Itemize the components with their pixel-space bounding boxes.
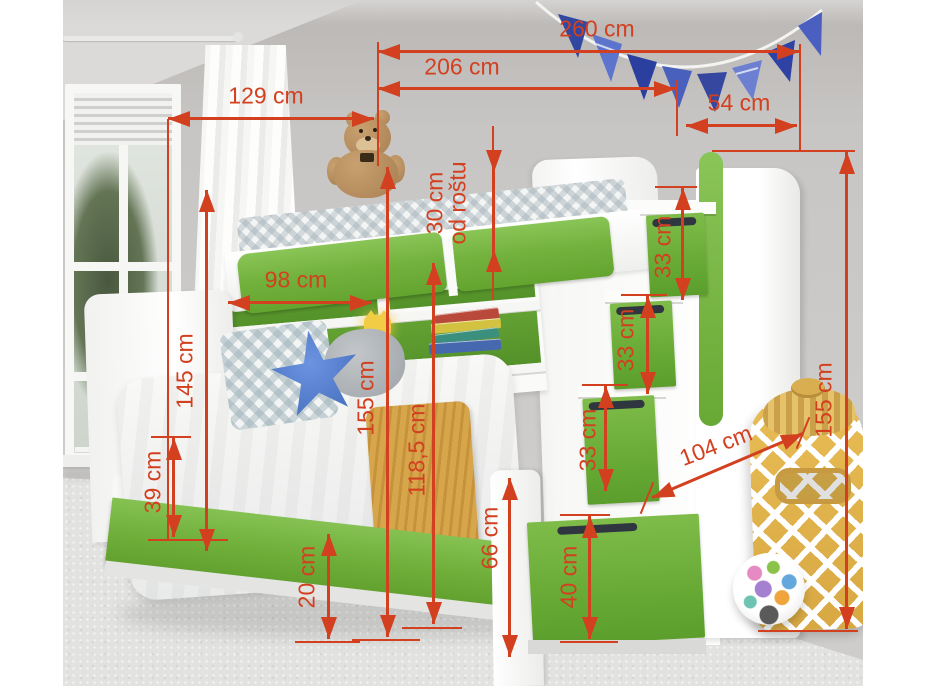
- dim-arrow-bed-length: [378, 87, 676, 90]
- dim-arrow-headboard-height: [205, 190, 208, 551]
- dim-tick: [295, 641, 360, 643]
- dim-tick: [712, 150, 855, 152]
- dim-label-total-height: 155 cm: [812, 362, 835, 437]
- dim-value: 30 cm: [424, 161, 447, 244]
- flag: [627, 54, 657, 100]
- dim-tick: [151, 436, 191, 438]
- dim-tick: [560, 514, 610, 516]
- dim-label-stairs-width: 54 cm: [708, 91, 771, 114]
- dim-tick: [621, 294, 667, 296]
- dim-arrow-rail-height: [492, 150, 495, 272]
- dim-arrow-total-height: [845, 152, 848, 629]
- teddy-bear: [365, 136, 371, 141]
- dim-tick: [352, 639, 420, 641]
- dim-note: od roštu: [447, 161, 470, 244]
- dim-label-bed-length: 206 cm: [424, 55, 499, 78]
- dim-arrow-stair-step-3: [604, 386, 607, 491]
- dim-extension-line: [377, 42, 379, 166]
- dim-tick: [655, 186, 697, 188]
- dim-label-headboard-height: 145 cm: [173, 333, 196, 408]
- dim-tick: [758, 630, 858, 632]
- dim-arrow-trundle-height: [172, 438, 175, 537]
- dim-arrow-footboard-height: [508, 478, 511, 657]
- dim-label-footboard-height: 66 cm: [478, 507, 501, 570]
- dim-extension-line: [167, 119, 169, 539]
- product-dimension-diagram: 260 cm 206 cm 129 cm 54 cm 98 cm 30 cm o…: [0, 0, 928, 686]
- dim-arrow-lower-height: [432, 263, 435, 624]
- room-photo: 260 cm 206 cm 129 cm 54 cm 98 cm 30 cm o…: [63, 0, 863, 686]
- dim-label-stair-drawer-height: 40 cm: [557, 546, 580, 609]
- dim-extension-line: [492, 126, 494, 152]
- dim-label-floor-clearance: 20 cm: [295, 546, 318, 609]
- stair-bottom-drawer: [527, 514, 705, 647]
- window-mullion: [74, 262, 172, 271]
- dim-label-shelf-width: 98 cm: [265, 268, 328, 291]
- dim-extension-line: [799, 44, 801, 150]
- toy-bag-handle: [775, 468, 851, 504]
- beach-ball: [733, 553, 805, 625]
- dim-arrow-shelf-width: [228, 301, 372, 304]
- dim-arrow-stairs-width: [686, 124, 797, 127]
- window-blinds: [74, 93, 172, 145]
- dim-tick: [148, 539, 228, 541]
- dim-arrow-upper-bed-width: [168, 117, 374, 120]
- teddy-bear-bow: [360, 153, 374, 162]
- teddy-bear: [359, 129, 363, 133]
- dim-label-upper-bed-width: 129 cm: [228, 84, 303, 107]
- curtain-rod-finial: [233, 32, 243, 42]
- dim-extension-line: [492, 270, 494, 300]
- dim-arrow-stair-drawer-height: [588, 516, 591, 639]
- dim-label-rail-height: 30 cm od roštu: [424, 161, 471, 244]
- dim-arrow-stair-step-2: [646, 296, 649, 394]
- dim-label-lower-height: 118,5 cm: [405, 404, 428, 497]
- dim-tick: [560, 641, 618, 643]
- dim-label-trundle-height: 39 cm: [141, 451, 164, 514]
- dim-label-stair-step-3: 33 cm: [576, 409, 599, 472]
- dim-arrow-stair-step-1: [681, 188, 684, 300]
- dim-label-total-width: 260 cm: [559, 17, 634, 40]
- dim-label-mid-height: 155 cm: [354, 360, 377, 435]
- dim-extension-line: [676, 80, 678, 136]
- dim-label-stair-step-2: 33 cm: [614, 309, 637, 372]
- dim-arrow-mid-height: [386, 167, 389, 637]
- dim-tick: [402, 627, 462, 629]
- dim-arrow-floor-clearance: [327, 534, 330, 639]
- dim-label-stair-step-1: 33 cm: [651, 216, 674, 279]
- dim-tick: [582, 384, 628, 386]
- curtain-rod: [63, 36, 237, 41]
